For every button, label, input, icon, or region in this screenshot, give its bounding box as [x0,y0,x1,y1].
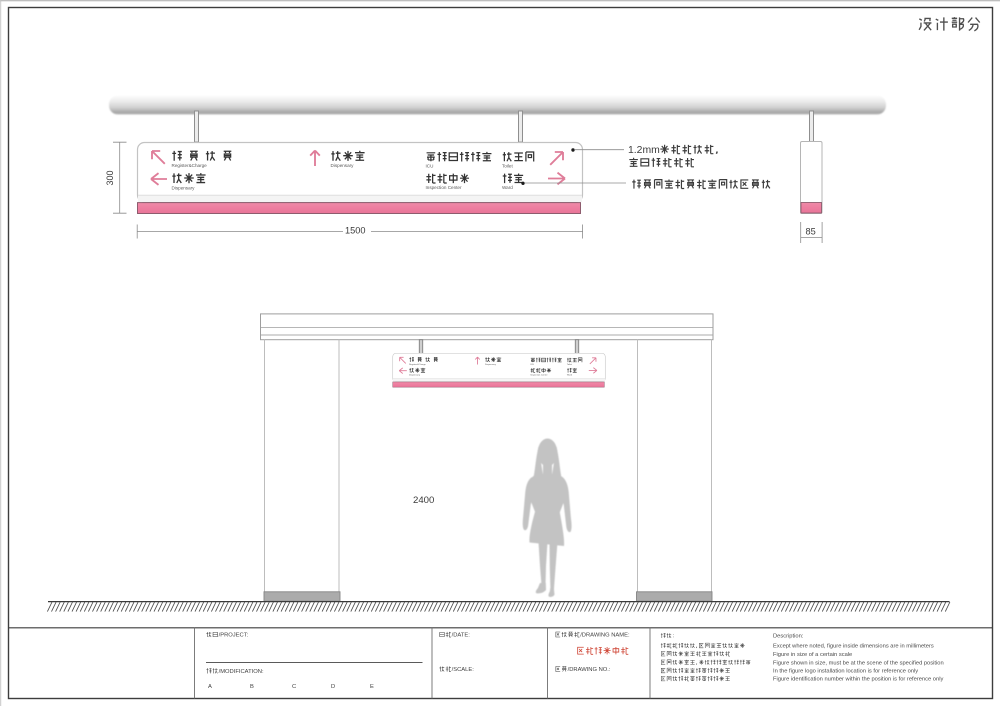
svg-text:/DRAWING NO.:: /DRAWING NO.: [568,667,611,673]
svg-text:Description:: Description: [773,634,804,640]
svg-text:85: 85 [806,226,816,236]
svg-text:In the figure logo installatio: In the figure logo installation location… [773,669,918,675]
svg-text:300: 300 [105,170,115,185]
svg-text:/SCALE:: /SCALE: [452,667,475,673]
svg-text:1500: 1500 [345,226,365,236]
svg-text:Figure in size of a certain sc: Figure in size of a certain scale [773,652,852,658]
svg-text:2400: 2400 [413,495,434,506]
svg-text:/DRAWING NAME:: /DRAWING NAME: [580,633,630,639]
svg-text:/PROJECT:: /PROJECT: [219,633,249,639]
svg-text:/DATE:: /DATE: [452,633,471,639]
svg-text:1.2mm: 1.2mm [628,145,660,156]
svg-text:A: A [208,684,212,690]
svg-text:E: E [370,684,374,690]
svg-text:Figure identification number w: Figure identification number within the … [773,677,943,683]
svg-text:/MODIFICATION:: /MODIFICATION: [219,669,264,675]
svg-text:D: D [331,684,335,690]
svg-text:B: B [250,684,254,690]
svg-text:Figure shown in size, must be: Figure shown in size, must be at the sce… [773,660,944,666]
svg-text:Except where noted, figure ins: Except where noted, figure inside dimens… [773,644,934,650]
svg-text:C: C [292,684,296,690]
